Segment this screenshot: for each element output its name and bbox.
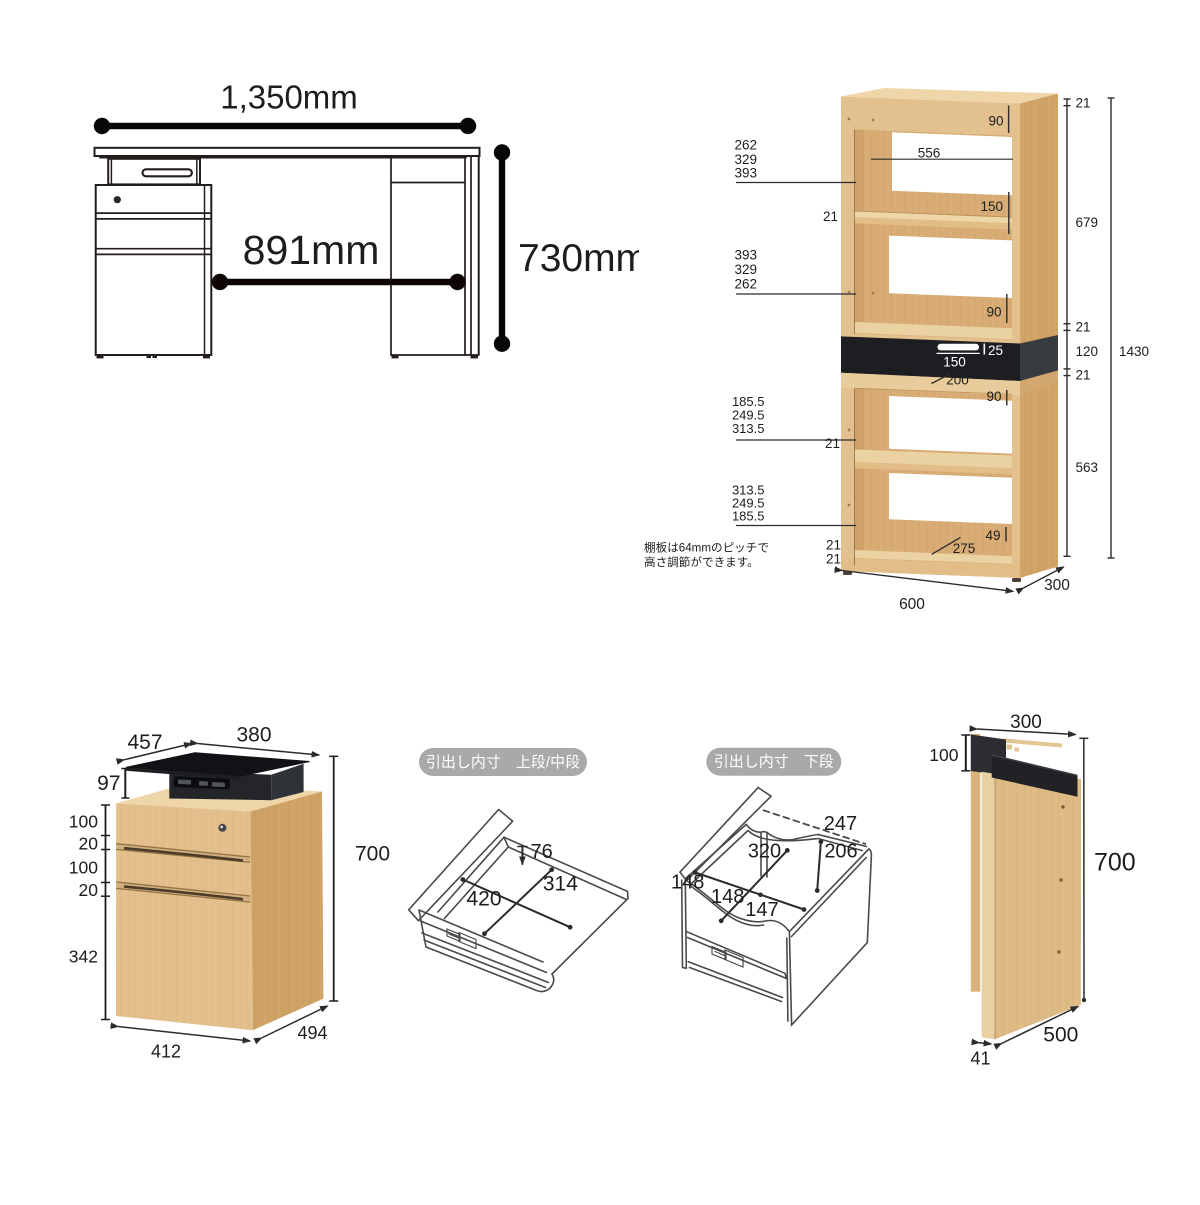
svg-text:148: 148: [711, 886, 744, 908]
svg-text:200: 200: [946, 373, 969, 388]
svg-text:21: 21: [823, 209, 838, 224]
svg-text:120: 120: [1076, 344, 1099, 359]
svg-text:500: 500: [1043, 1024, 1078, 1047]
svg-text:90: 90: [986, 389, 1001, 404]
svg-text:420: 420: [466, 888, 501, 911]
svg-text:21: 21: [826, 552, 841, 567]
svg-text:412: 412: [151, 1042, 181, 1062]
svg-text:90: 90: [988, 114, 1003, 129]
svg-text:97: 97: [97, 772, 120, 795]
svg-text:76: 76: [531, 841, 553, 863]
svg-text:556: 556: [918, 146, 941, 161]
svg-text:20: 20: [79, 880, 99, 900]
svg-text:206: 206: [824, 841, 857, 863]
svg-text:679: 679: [1076, 215, 1099, 230]
svg-text:275: 275: [953, 541, 976, 556]
svg-text:150: 150: [980, 199, 1003, 214]
svg-text:1430: 1430: [1119, 344, 1149, 359]
svg-text:262: 262: [734, 138, 757, 153]
svg-text:313.5: 313.5: [732, 421, 765, 436]
svg-text:1,350mm: 1,350mm: [220, 79, 358, 116]
svg-text:320: 320: [748, 841, 781, 863]
svg-text:棚板は64mmのピッチで: 棚板は64mmのピッチで: [644, 541, 769, 555]
svg-text:25: 25: [988, 343, 1003, 358]
svg-text:247: 247: [824, 813, 857, 835]
svg-text:高さ調節ができます。: 高さ調節ができます。: [644, 555, 759, 569]
svg-text:393: 393: [734, 166, 757, 181]
svg-text:300: 300: [1010, 712, 1042, 733]
svg-text:494: 494: [297, 1023, 327, 1043]
svg-text:20: 20: [79, 834, 99, 854]
svg-text:90: 90: [986, 305, 1001, 320]
svg-text:457: 457: [127, 731, 162, 754]
svg-text:引出し内寸 上段/中段: 引出し内寸 上段/中段: [426, 754, 580, 771]
svg-text:21: 21: [1076, 368, 1091, 383]
svg-text:100: 100: [69, 858, 98, 878]
svg-text:21: 21: [1076, 96, 1091, 111]
svg-text:147: 147: [745, 899, 778, 921]
svg-text:21: 21: [1076, 320, 1091, 335]
svg-text:342: 342: [69, 947, 98, 967]
svg-text:148: 148: [671, 872, 704, 894]
svg-text:300: 300: [1044, 577, 1070, 594]
svg-text:393: 393: [734, 248, 757, 263]
svg-text:891mm: 891mm: [243, 227, 380, 273]
svg-text:563: 563: [1076, 460, 1099, 475]
svg-text:380: 380: [236, 724, 271, 747]
svg-text:41: 41: [970, 1049, 990, 1069]
svg-text:100: 100: [69, 812, 98, 832]
svg-text:730mm: 730mm: [518, 237, 648, 280]
svg-text:185.5: 185.5: [732, 509, 765, 524]
svg-text:引出し内寸 下段: 引出し内寸 下段: [714, 754, 834, 771]
svg-text:49: 49: [985, 528, 1000, 543]
svg-text:21: 21: [825, 436, 840, 451]
svg-text:314: 314: [543, 872, 578, 895]
svg-text:262: 262: [734, 277, 757, 292]
svg-text:700: 700: [1094, 849, 1136, 877]
svg-text:700: 700: [355, 843, 390, 866]
svg-text:100: 100: [929, 745, 958, 765]
svg-text:329: 329: [734, 262, 757, 277]
svg-text:150: 150: [943, 355, 966, 370]
svg-text:21: 21: [826, 538, 841, 553]
svg-text:600: 600: [899, 596, 925, 613]
